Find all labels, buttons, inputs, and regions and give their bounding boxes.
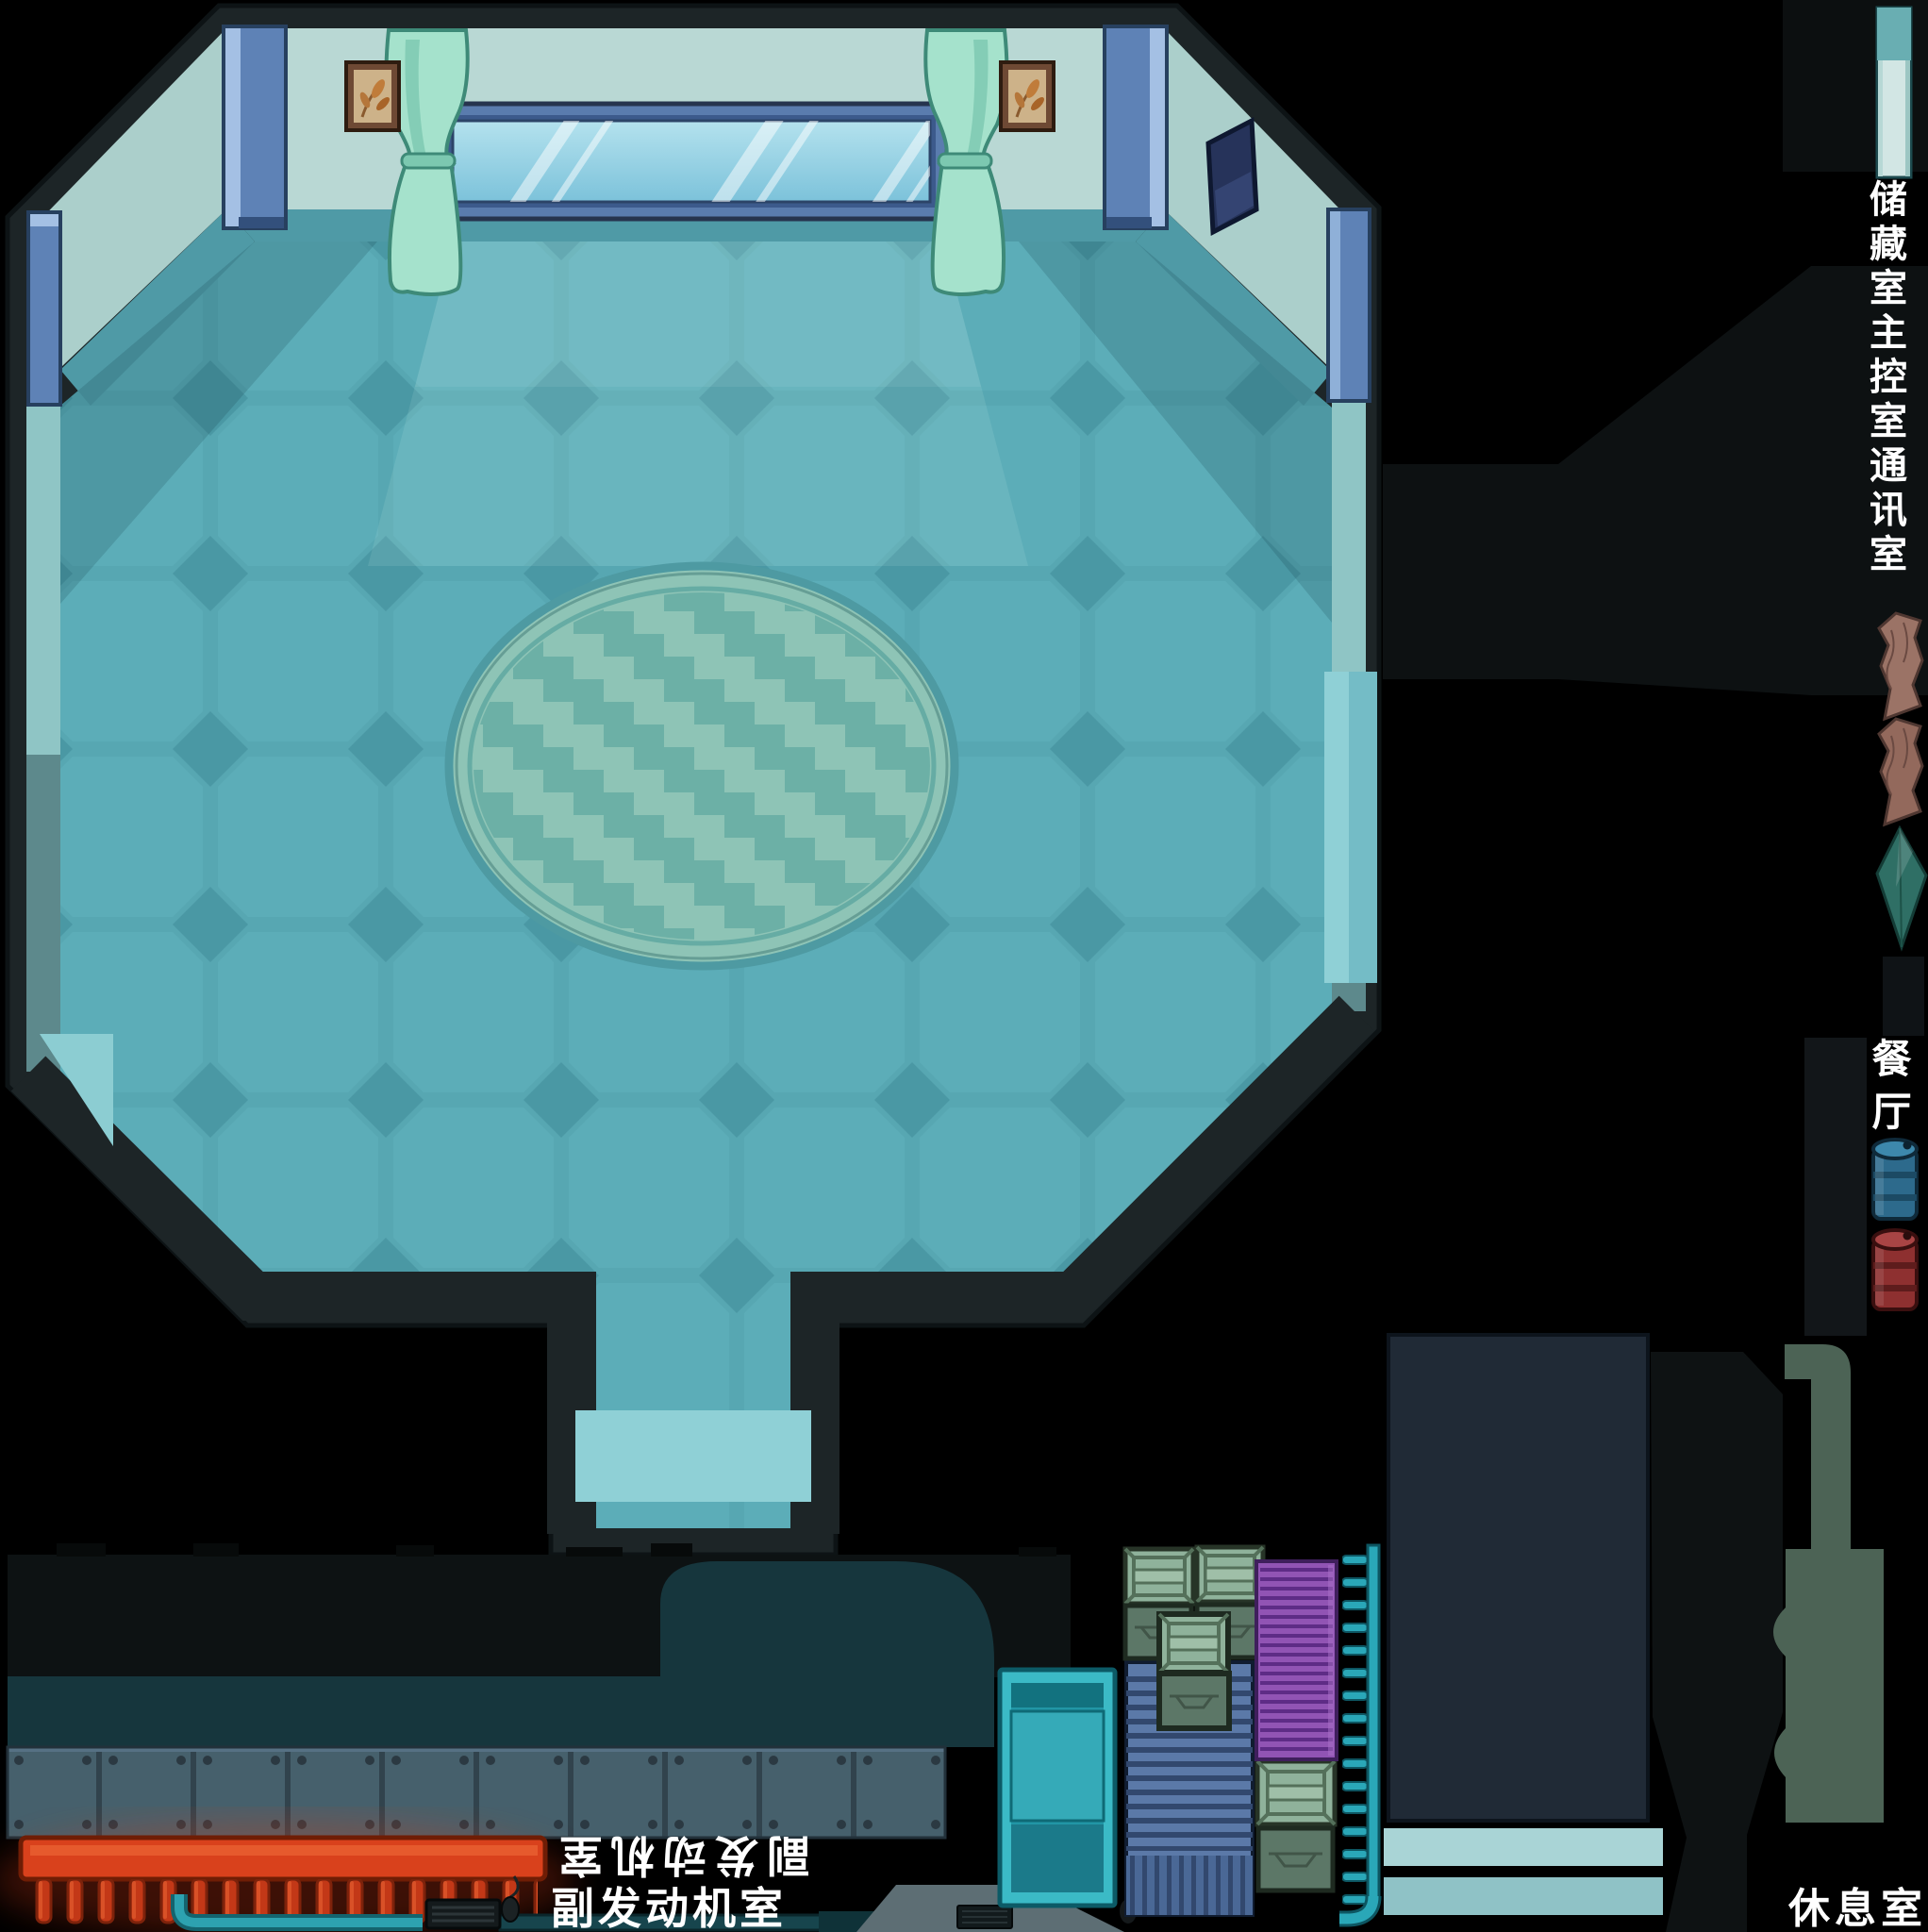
heat-sink-highlight [30, 1845, 538, 1856]
aux-engine-label-flipped-text: 副发动机室 [551, 1834, 810, 1877]
crate-dark-3[interactable] [1258, 1828, 1333, 1890]
keyboard[interactable] [426, 1900, 500, 1928]
window[interactable] [436, 104, 967, 219]
pillar-top-left [224, 26, 286, 228]
pillar-ne [1328, 209, 1370, 401]
crate-light-1[interactable] [1125, 1549, 1193, 1604]
purple-radiator[interactable] [1256, 1561, 1337, 1759]
red-barrel[interactable] [1873, 1230, 1917, 1309]
crate-light-3[interactable] [1257, 1761, 1335, 1824]
platform-bar-1 [1384, 1828, 1663, 1866]
pipe-ladder[interactable] [1339, 1545, 1379, 1919]
vent-door-machine[interactable] [1000, 1670, 1115, 1906]
west-wall-shade [26, 755, 60, 1072]
game-map-stage: 储藏室主控室通讯室 餐厅 副发动机室 副发动机室 休息室 [0, 0, 1928, 1932]
vent-grill [957, 1906, 1012, 1928]
door-threshold-south[interactable] [575, 1410, 811, 1502]
plant-picture-left [346, 62, 399, 130]
east-exit-inner [1324, 672, 1349, 983]
console-block [1388, 1335, 1648, 1821]
lounge-label: 休息室 [1788, 1889, 1927, 1930]
armor-plate-row [8, 1747, 945, 1838]
crate-dark-center[interactable] [1159, 1674, 1229, 1728]
plant-picture-right [1001, 62, 1054, 130]
window-light-shaft-bright [415, 241, 981, 387]
crate-light-2[interactable] [1197, 1547, 1263, 1602]
dining-hall-label: 餐厅 [1869, 1038, 1908, 1143]
shadow-column-upper [1804, 1038, 1867, 1336]
heat-sink-bar [21, 1838, 545, 1879]
wall-monitor[interactable] [1208, 121, 1256, 232]
wall-strip-sprite [1877, 8, 1911, 177]
aux-engine-label-flipped: 副发动机室 [551, 1834, 810, 1877]
blue-barrel[interactable] [1873, 1140, 1917, 1219]
map-canvas [0, 0, 1928, 1932]
pillar-west [28, 212, 60, 405]
aux-engine-label: 副发动机室 [551, 1887, 787, 1930]
platform-bar-2 [1384, 1877, 1663, 1915]
rooms-column-label: 储藏室主控室通讯室 [1866, 179, 1903, 578]
crate-light-center[interactable] [1159, 1614, 1228, 1673]
pillar-top-right [1105, 26, 1167, 228]
dark-block-sprite [1883, 957, 1924, 1036]
